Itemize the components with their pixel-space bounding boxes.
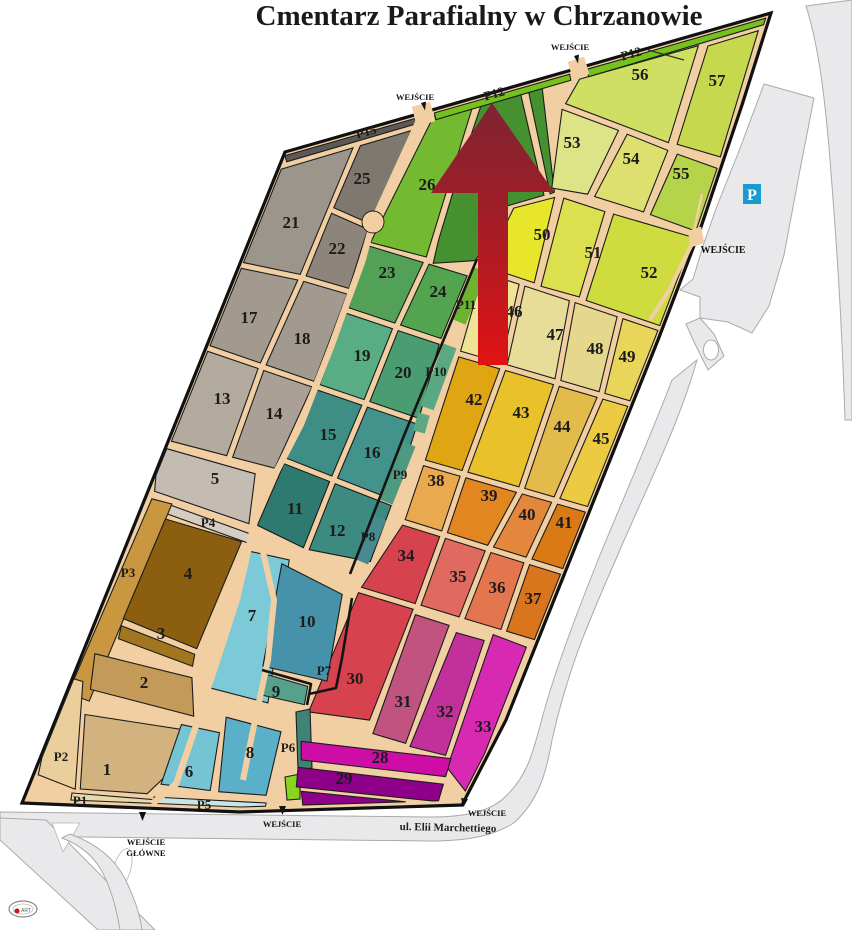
svg-text:P7: P7 [317, 663, 332, 678]
svg-text:30: 30 [347, 669, 364, 688]
svg-text:8: 8 [246, 743, 255, 762]
svg-text:P11: P11 [456, 297, 476, 312]
svg-text:12: 12 [329, 521, 346, 540]
svg-text:WEJŚCIE: WEJŚCIE [396, 92, 435, 102]
svg-text:54: 54 [623, 149, 641, 168]
svg-text:46: 46 [506, 302, 523, 321]
svg-text:6: 6 [185, 762, 194, 781]
svg-text:20: 20 [395, 363, 412, 382]
svg-text:49: 49 [619, 347, 636, 366]
svg-text:11: 11 [287, 499, 303, 518]
svg-text:36: 36 [489, 578, 506, 597]
svg-text:41: 41 [556, 513, 573, 532]
svg-text:23: 23 [379, 263, 396, 282]
svg-text:37: 37 [525, 589, 543, 608]
svg-text:WEJŚCIE: WEJŚCIE [551, 42, 590, 52]
svg-text:ul. Elii Marchettiego: ul. Elii Marchettiego [400, 821, 497, 835]
svg-text:P4: P4 [201, 515, 216, 530]
svg-text:52: 52 [641, 263, 658, 282]
svg-text:32: 32 [437, 702, 454, 721]
svg-text:P1: P1 [73, 793, 87, 808]
svg-text:29: 29 [336, 769, 353, 788]
svg-text:16: 16 [364, 443, 381, 462]
svg-text:WEJŚCIE: WEJŚCIE [263, 819, 302, 829]
svg-text:56: 56 [632, 65, 649, 84]
svg-text:17: 17 [241, 308, 259, 327]
svg-text:1: 1 [103, 760, 112, 779]
svg-text:43: 43 [513, 403, 530, 422]
svg-text:55: 55 [673, 164, 690, 183]
svg-text:42: 42 [466, 390, 483, 409]
svg-text:P2: P2 [54, 749, 68, 764]
svg-text:Cmentarz Parafialny w Chrzanow: Cmentarz Parafialny w Chrzanowie [256, 0, 703, 32]
svg-text:34: 34 [398, 546, 416, 565]
svg-text:7: 7 [248, 606, 257, 625]
svg-text:25: 25 [354, 169, 371, 188]
svg-text:53: 53 [564, 133, 581, 152]
svg-text:44: 44 [554, 417, 572, 436]
svg-text:P9: P9 [393, 467, 408, 482]
svg-text:28: 28 [372, 748, 389, 767]
svg-text:P: P [747, 187, 757, 204]
svg-text:P3: P3 [121, 565, 136, 580]
svg-text:ART: ART [21, 908, 31, 914]
svg-text:4: 4 [184, 564, 193, 583]
svg-text:33: 33 [475, 717, 492, 736]
svg-text:47: 47 [547, 325, 565, 344]
svg-text:P10: P10 [426, 364, 447, 379]
svg-text:2: 2 [140, 673, 149, 692]
svg-text:50: 50 [534, 225, 551, 244]
svg-text:18: 18 [294, 329, 311, 348]
svg-text:48: 48 [587, 339, 604, 358]
svg-text:15: 15 [320, 425, 337, 444]
svg-text:35: 35 [450, 567, 467, 586]
svg-text:3: 3 [157, 624, 166, 643]
svg-text:51: 51 [585, 243, 602, 262]
svg-text:39: 39 [481, 486, 498, 505]
svg-text:45: 45 [593, 429, 610, 448]
svg-text:WEJŚCIE: WEJŚCIE [468, 808, 507, 818]
svg-text:9: 9 [272, 682, 281, 701]
svg-text:WEJŚCIE: WEJŚCIE [127, 837, 166, 847]
svg-text:19: 19 [354, 346, 371, 365]
svg-text:GŁÓWNE: GŁÓWNE [126, 848, 166, 858]
svg-text:WEJŚCIE: WEJŚCIE [700, 244, 745, 256]
svg-text:24: 24 [430, 282, 448, 301]
svg-text:57: 57 [709, 71, 727, 90]
svg-text:P6: P6 [281, 740, 296, 755]
svg-text:10: 10 [299, 612, 316, 631]
svg-text:13: 13 [214, 389, 231, 408]
svg-text:22: 22 [329, 239, 346, 258]
svg-text:P5: P5 [197, 797, 212, 812]
svg-text:5: 5 [211, 469, 220, 488]
svg-text:31: 31 [395, 692, 412, 711]
svg-text:P8: P8 [361, 529, 376, 544]
svg-text:38: 38 [428, 471, 445, 490]
svg-text:14: 14 [266, 404, 284, 423]
svg-text:40: 40 [519, 505, 536, 524]
svg-text:21: 21 [283, 213, 300, 232]
